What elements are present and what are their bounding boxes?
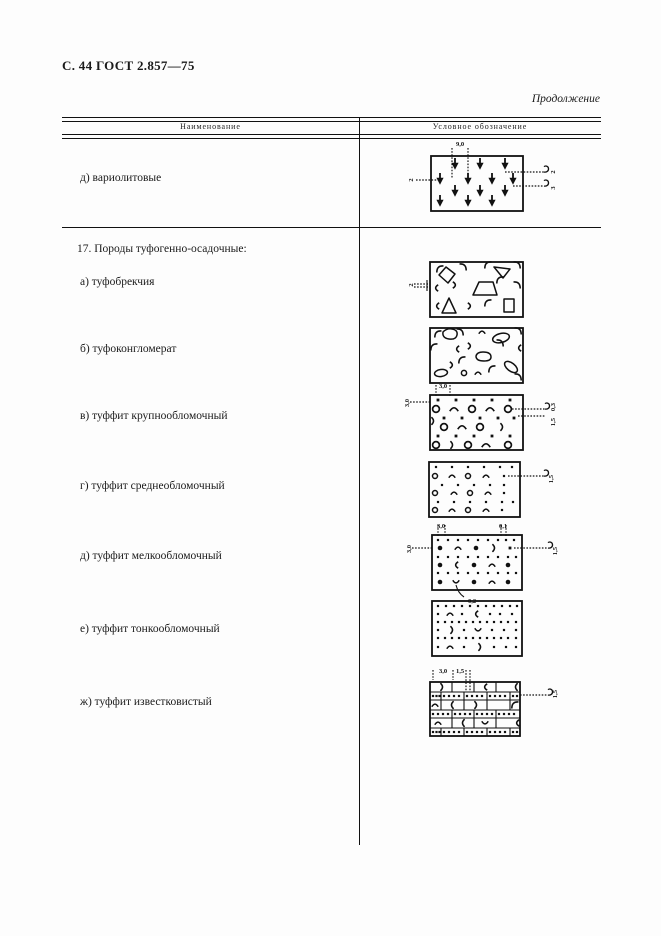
row-divider <box>62 227 601 228</box>
column-header-symbol: Условное обозначение <box>360 122 600 131</box>
pattern-tuffite-calcareous: 3,0 1,5 1,5 <box>398 666 580 746</box>
dim-label: 2 <box>550 170 557 173</box>
pattern-variolite: 9,0 2 2 3 <box>400 138 580 222</box>
row-label-tuffite-calcareous: ж) туффит известковистый <box>80 696 212 708</box>
dim-label: 1,5 <box>552 689 559 698</box>
dim-label: 1,5 <box>550 417 557 426</box>
dim-label: 3,0 <box>437 523 445 530</box>
dim-label: 3 <box>550 186 557 190</box>
pattern-tuff-breccia: 2 <box>400 253 560 323</box>
row-label-variolite: д) вариолитовые <box>80 172 161 184</box>
dim-label: 0,1 <box>499 523 507 530</box>
dim-label: 1,5 <box>552 546 559 555</box>
row-label-tuffite-thin: е) туффит тонкообломочный <box>80 623 220 635</box>
dim-label: 1,5 <box>456 668 465 675</box>
pattern-tuffite-coarse: 3,0 3,0 0,3 1,5 <box>398 381 576 459</box>
dim-label: 9,0 <box>456 141 464 148</box>
dim-label: 3,0 <box>406 545 413 553</box>
dimension-annotations: 3,0 3,0 0,3 1,5 <box>404 383 557 426</box>
row-label-tuff-conglomerate: б) туфоконгломерат <box>80 343 176 355</box>
dimension-annotations: 2 <box>408 280 430 291</box>
row-label-tuff-breccia: а) туфобрекчия <box>80 276 154 288</box>
dim-label: 1,5 <box>548 474 555 483</box>
dimension-annotations: 1,5 <box>508 470 555 483</box>
document-page: С. 44 ГОСТ 2.857—75 Продолжение Наименов… <box>0 0 661 936</box>
pattern-glyphs <box>433 466 515 513</box>
dim-label: 0,3 <box>550 402 557 411</box>
column-header-name: Наименование <box>62 122 359 131</box>
pattern-tuffite-medium: 1,5 <box>398 453 576 521</box>
pattern-glyphs <box>437 539 517 584</box>
dim-label: 3,0 <box>404 399 411 407</box>
dim-label: 3,0 <box>439 668 447 675</box>
row-label-tuffite-fine: д) туффит мелкообломочный <box>80 550 222 562</box>
dim-label: 2 <box>408 283 415 286</box>
pattern-glyphs <box>436 158 516 207</box>
page-header: С. 44 ГОСТ 2.857—75 <box>62 58 195 74</box>
pattern-glyphs <box>430 682 520 736</box>
continuation-label: Продолжение <box>360 93 600 105</box>
pattern-glyphs <box>431 328 521 381</box>
pattern-glyphs <box>437 605 518 651</box>
pattern-tuff-conglomerate <box>400 320 560 386</box>
section-label-17: 17. Породы туфогенно-осадочные: <box>77 243 247 255</box>
dim-label: 3,0 <box>439 383 447 390</box>
pattern-tuffite-thin <box>400 593 560 661</box>
pattern-glyphs <box>431 399 515 449</box>
dim-label: 2 <box>408 178 415 181</box>
row-label-tuffite-coarse: в) туффит крупнообломочный <box>80 410 228 422</box>
row-label-tuffite-medium: г) туффит среднеобломочный <box>80 480 225 492</box>
pattern-glyphs <box>436 262 521 313</box>
